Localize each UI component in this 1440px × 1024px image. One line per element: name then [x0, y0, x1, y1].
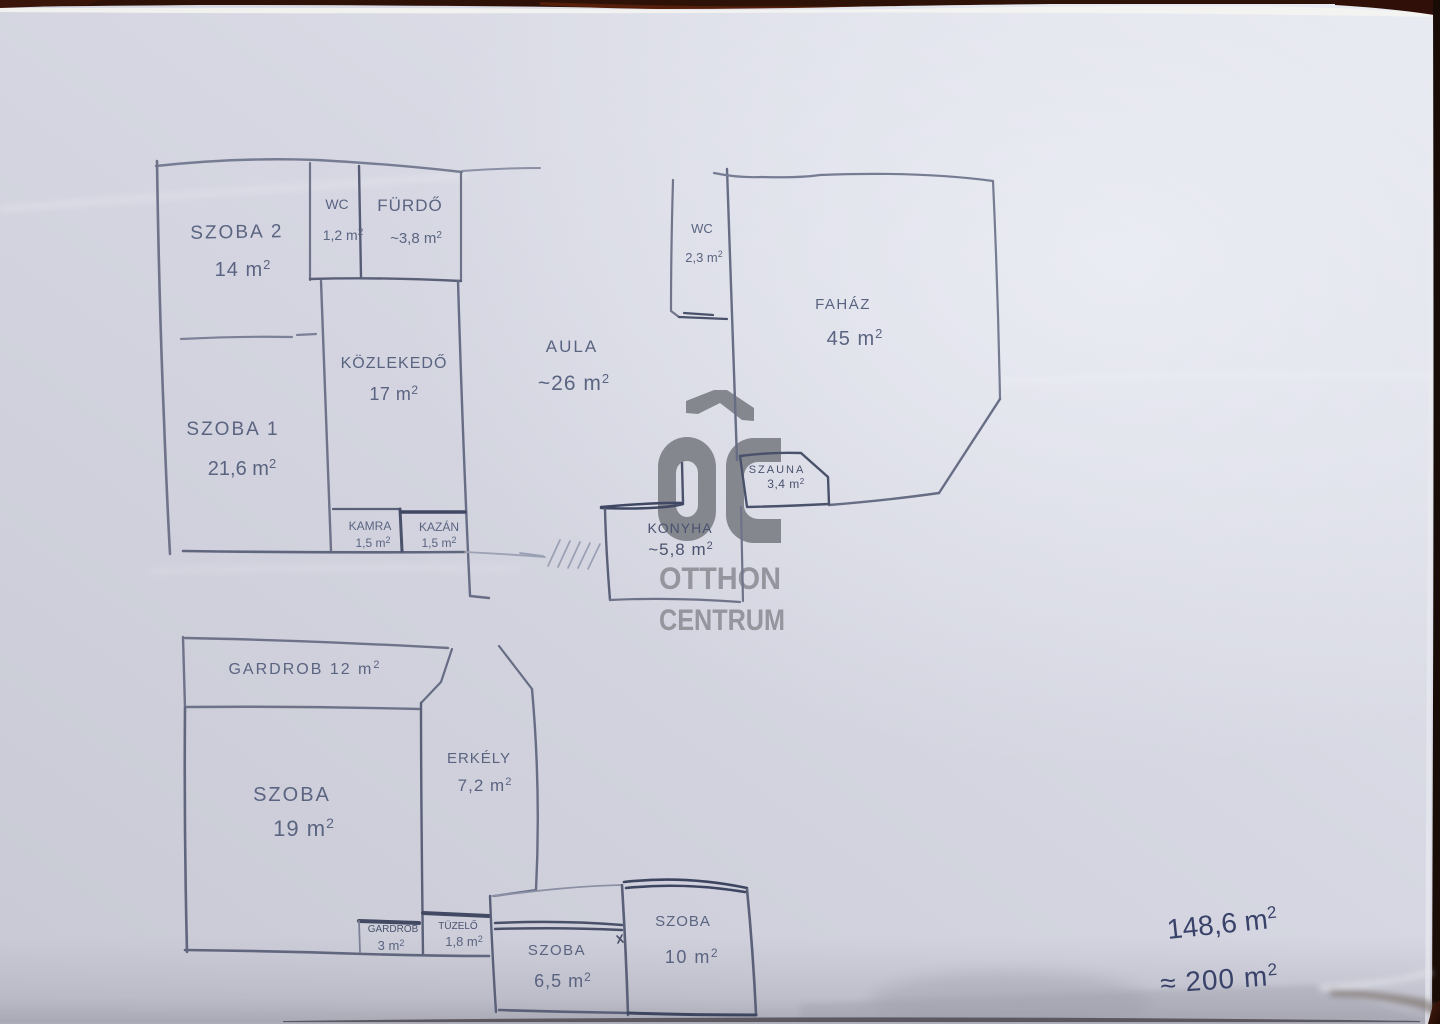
svg-text:45 m2: 45 m2: [827, 326, 884, 350]
svg-text:ERKÉLY: ERKÉLY: [447, 750, 511, 767]
svg-text:AULA: AULA: [546, 337, 598, 356]
svg-text:1,2 m2: 1,2 m2: [323, 227, 364, 243]
svg-text:FAHÁZ: FAHÁZ: [815, 296, 871, 313]
svg-text:GARDROB 12 m2: GARDROB 12 m2: [228, 659, 381, 678]
svg-text:1,5 m2: 1,5 m2: [421, 535, 456, 550]
svg-text:WC: WC: [691, 221, 713, 236]
svg-text:1,8 m2: 1,8 m2: [445, 934, 483, 949]
svg-text:17 m2: 17 m2: [369, 383, 418, 404]
svg-text:KÖZLEKEDŐ: KÖZLEKEDŐ: [341, 353, 448, 372]
svg-text:SZOBA 1: SZOBA 1: [186, 419, 279, 440]
svg-text:SZOBA: SZOBA: [253, 784, 331, 806]
svg-text:SZOBA: SZOBA: [655, 913, 711, 930]
svg-text:SZOBA 2: SZOBA 2: [190, 221, 284, 244]
svg-text:GARDROB: GARDROB: [368, 924, 419, 935]
svg-text:2,3 m2: 2,3 m2: [685, 249, 723, 265]
svg-text:KAZÁN: KAZÁN: [419, 519, 459, 534]
svg-text:CENTRUM: CENTRUM: [659, 604, 785, 637]
svg-text:14 m2: 14 m2: [215, 257, 272, 281]
svg-text:~5,8 m2: ~5,8 m2: [648, 540, 714, 559]
svg-text:OTTHON: OTTHON: [659, 560, 781, 596]
svg-text:~3,8 m2: ~3,8 m2: [390, 230, 442, 247]
svg-text:7,2 m2: 7,2 m2: [458, 776, 513, 795]
svg-text:3,4 m2: 3,4 m2: [767, 477, 805, 491]
svg-text:TÜZELŐ: TÜZELŐ: [438, 918, 478, 932]
svg-text:~26 m2: ~26 m2: [538, 371, 610, 395]
svg-text:6,5 m2: 6,5 m2: [534, 970, 592, 991]
svg-text:1,5 m2: 1,5 m2: [355, 535, 390, 550]
svg-text:SZAUNA: SZAUNA: [749, 464, 806, 476]
svg-text:KAMRA: KAMRA: [349, 519, 392, 533]
svg-text:SZOBA: SZOBA: [528, 942, 586, 959]
svg-text:FÜRDŐ: FÜRDŐ: [377, 196, 442, 215]
svg-text:19 m2: 19 m2: [273, 815, 335, 841]
svg-text:KONYHA: KONYHA: [647, 520, 712, 536]
svg-text:WC: WC: [325, 196, 348, 212]
svg-text:21,6 m2: 21,6 m2: [208, 456, 276, 480]
